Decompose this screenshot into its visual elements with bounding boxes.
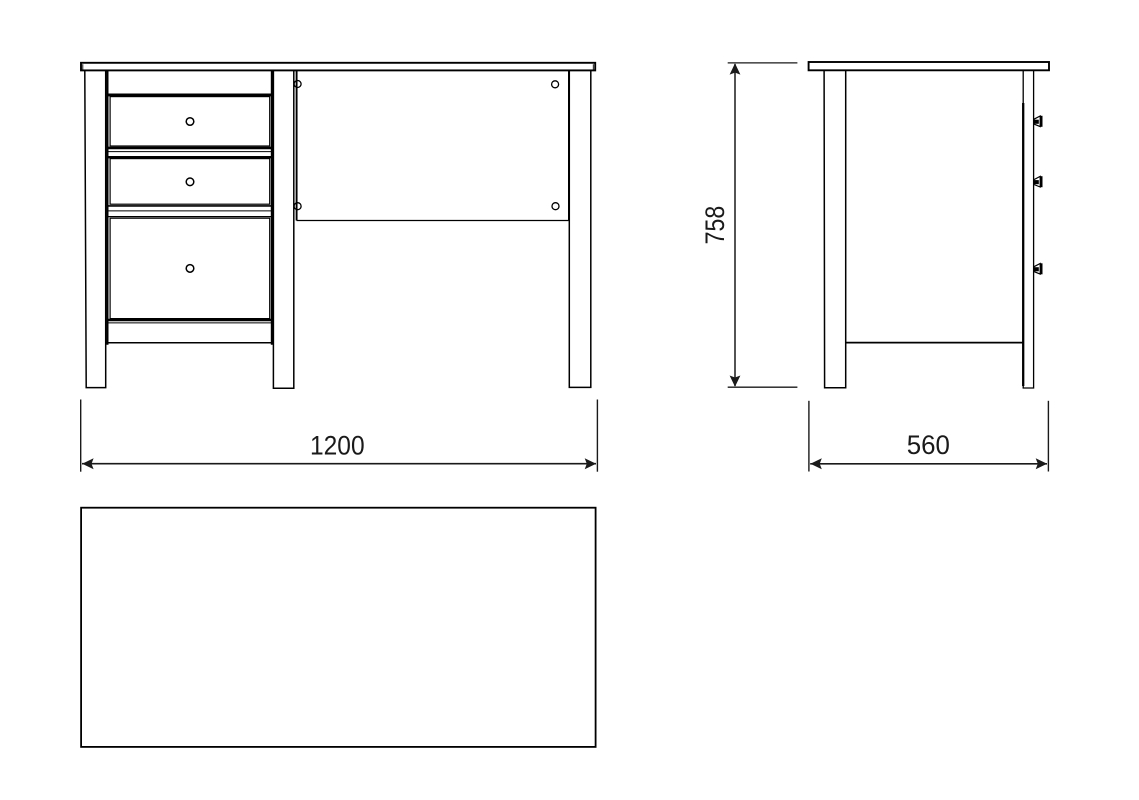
- svg-text:758: 758: [700, 206, 730, 245]
- svg-text:1200: 1200: [310, 430, 365, 460]
- svg-text:560: 560: [907, 430, 950, 460]
